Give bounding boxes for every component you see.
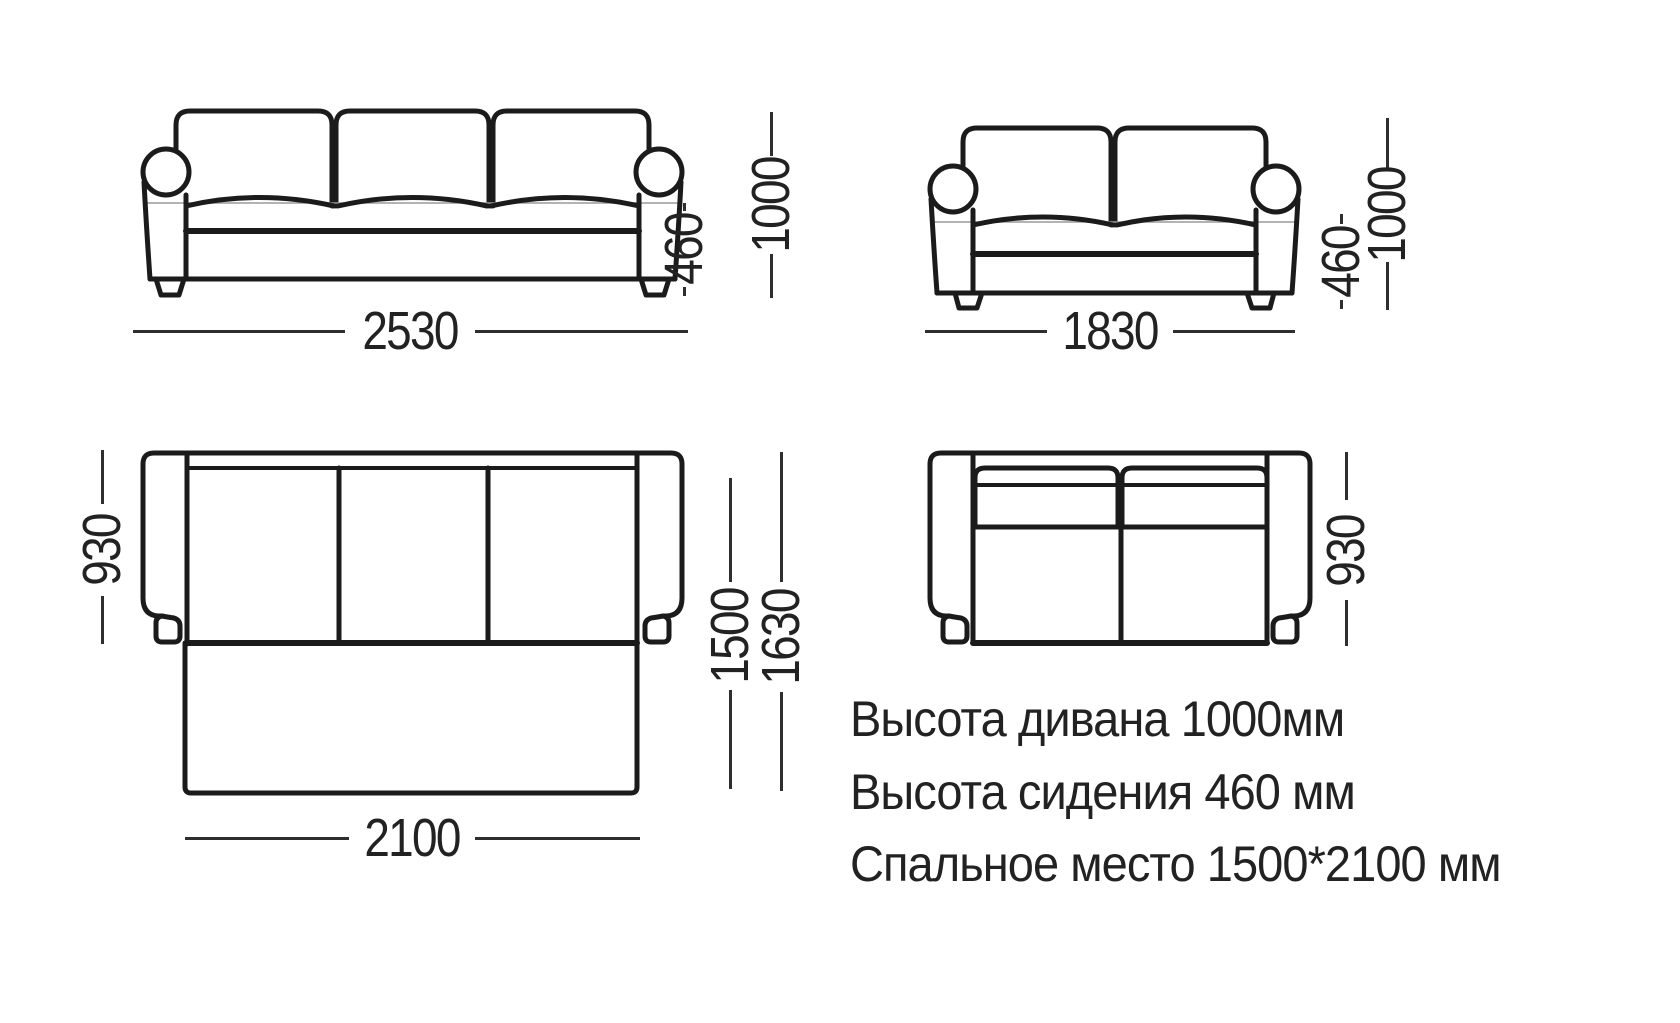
dim-label-sofa3-width: 2530 (362, 300, 457, 362)
dim-line (1340, 300, 1343, 309)
dim-line (1340, 214, 1343, 224)
right-arm-outer-edge (1291, 464, 1310, 616)
dim-label-bed-total-depth: 1630 (750, 589, 812, 684)
seat-cushion-curve (186, 198, 334, 207)
left-arm-foot (156, 616, 180, 642)
dim-line (185, 837, 349, 840)
seat-cushion-curve (338, 198, 487, 207)
dim-label-sofa2-depth: 930 (1315, 515, 1377, 586)
back-cushion (1115, 128, 1266, 225)
right-arm-foot (1273, 616, 1297, 642)
backrest-cushion (975, 468, 1118, 527)
dim-label-bed-width: 2100 (364, 807, 459, 869)
back-cushion (963, 128, 1111, 225)
left-arm-scroll (930, 166, 976, 212)
back-outer-edge (930, 453, 1310, 464)
dim-line (1345, 452, 1348, 500)
three-seat-sofa-bed-top-drawing (140, 450, 706, 800)
dim-line (683, 203, 686, 211)
dim-label-sofa2-width: 1830 (1062, 300, 1157, 362)
seat-cushion-curve (491, 198, 639, 207)
dim-line (780, 692, 783, 791)
dim-line (475, 330, 688, 333)
right-arm-scroll (636, 149, 682, 195)
note-sofa-height: Высота дивана 1000мм (850, 690, 1344, 748)
dim-label-sofa3-height: 1000 (740, 157, 802, 252)
dim-line (925, 330, 1047, 333)
seat-cushion-curve (973, 217, 1113, 225)
fold-out-bed (185, 643, 637, 793)
right-arm-foot (645, 616, 669, 642)
dim-label-sofa3-depth: 930 (71, 514, 133, 585)
left-arm-outer-edge (144, 182, 150, 279)
back-outer-edge (143, 453, 682, 464)
dim-label-sofa3-seat-height: 460 (653, 213, 715, 284)
left-arm-scroll (143, 149, 189, 195)
dim-line (1173, 330, 1295, 333)
left-arm-foot (943, 616, 967, 642)
note-bed-size: Спальное место 1500*2100 мм (850, 835, 1501, 893)
right-arm-outer-edge (663, 464, 682, 616)
dim-line (1386, 118, 1389, 168)
two-seat-sofa-top-drawing (925, 450, 1315, 650)
right-arm-outer-edge (1292, 199, 1298, 293)
dim-line (770, 112, 773, 156)
right-arm-scroll (1253, 166, 1299, 212)
three-seat-sofa-front-drawing (120, 85, 686, 315)
dim-label-sofa2-height: 1000 (1356, 167, 1418, 262)
seat-cushion-curve (1117, 217, 1256, 225)
back-cushion (336, 111, 489, 206)
backrest-cushion (1122, 468, 1267, 527)
dim-line (133, 330, 345, 333)
dim-line (1345, 600, 1348, 646)
dim-line (770, 254, 773, 298)
left-arm-outer-edge (930, 464, 949, 616)
dim-line (729, 690, 732, 789)
dim-line (475, 837, 640, 840)
dim-line (729, 478, 732, 582)
left-arm-outer-edge (931, 199, 937, 293)
left-arm-outer-edge (143, 464, 162, 616)
back-cushion (176, 111, 332, 206)
dim-line (683, 287, 686, 296)
dim-line (101, 596, 104, 644)
dim-line (1386, 262, 1389, 310)
back-cushion (493, 111, 649, 206)
dim-line (780, 452, 783, 582)
dim-line (101, 450, 104, 504)
note-seat-height: Высота сидения 460 мм (850, 763, 1355, 821)
diagram-canvas: 2530 460 1000 1830 460 1000 930 1500 163… (0, 0, 1680, 1023)
